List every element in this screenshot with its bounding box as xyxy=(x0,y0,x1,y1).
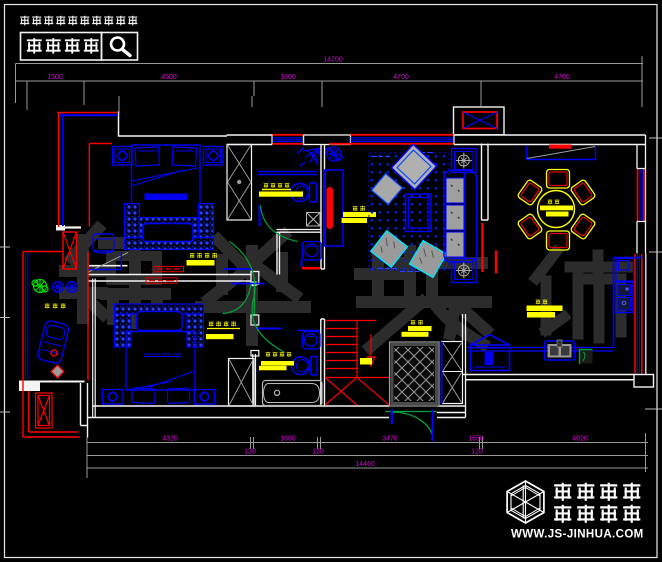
svg-text:120: 120 xyxy=(244,449,256,456)
svg-text:4320: 4320 xyxy=(162,436,178,443)
svg-text:14700: 14700 xyxy=(323,57,343,64)
svg-text:1500: 1500 xyxy=(47,74,63,81)
svg-text:4700: 4700 xyxy=(393,74,409,81)
svg-text:3470: 3470 xyxy=(382,436,398,443)
svg-text:1650: 1650 xyxy=(468,436,484,443)
svg-text:4500: 4500 xyxy=(161,74,177,81)
svg-text:120: 120 xyxy=(312,449,324,456)
svg-text:WWW.JS-JINHUA.COM: WWW.JS-JINHUA.COM xyxy=(511,529,644,541)
svg-text:120: 120 xyxy=(471,449,483,456)
svg-text:14460: 14460 xyxy=(355,461,375,468)
svg-text:1800: 1800 xyxy=(280,74,296,81)
svg-text:4020: 4020 xyxy=(572,436,588,443)
svg-text:4700: 4700 xyxy=(554,74,570,81)
svg-text:1680: 1680 xyxy=(280,436,296,443)
